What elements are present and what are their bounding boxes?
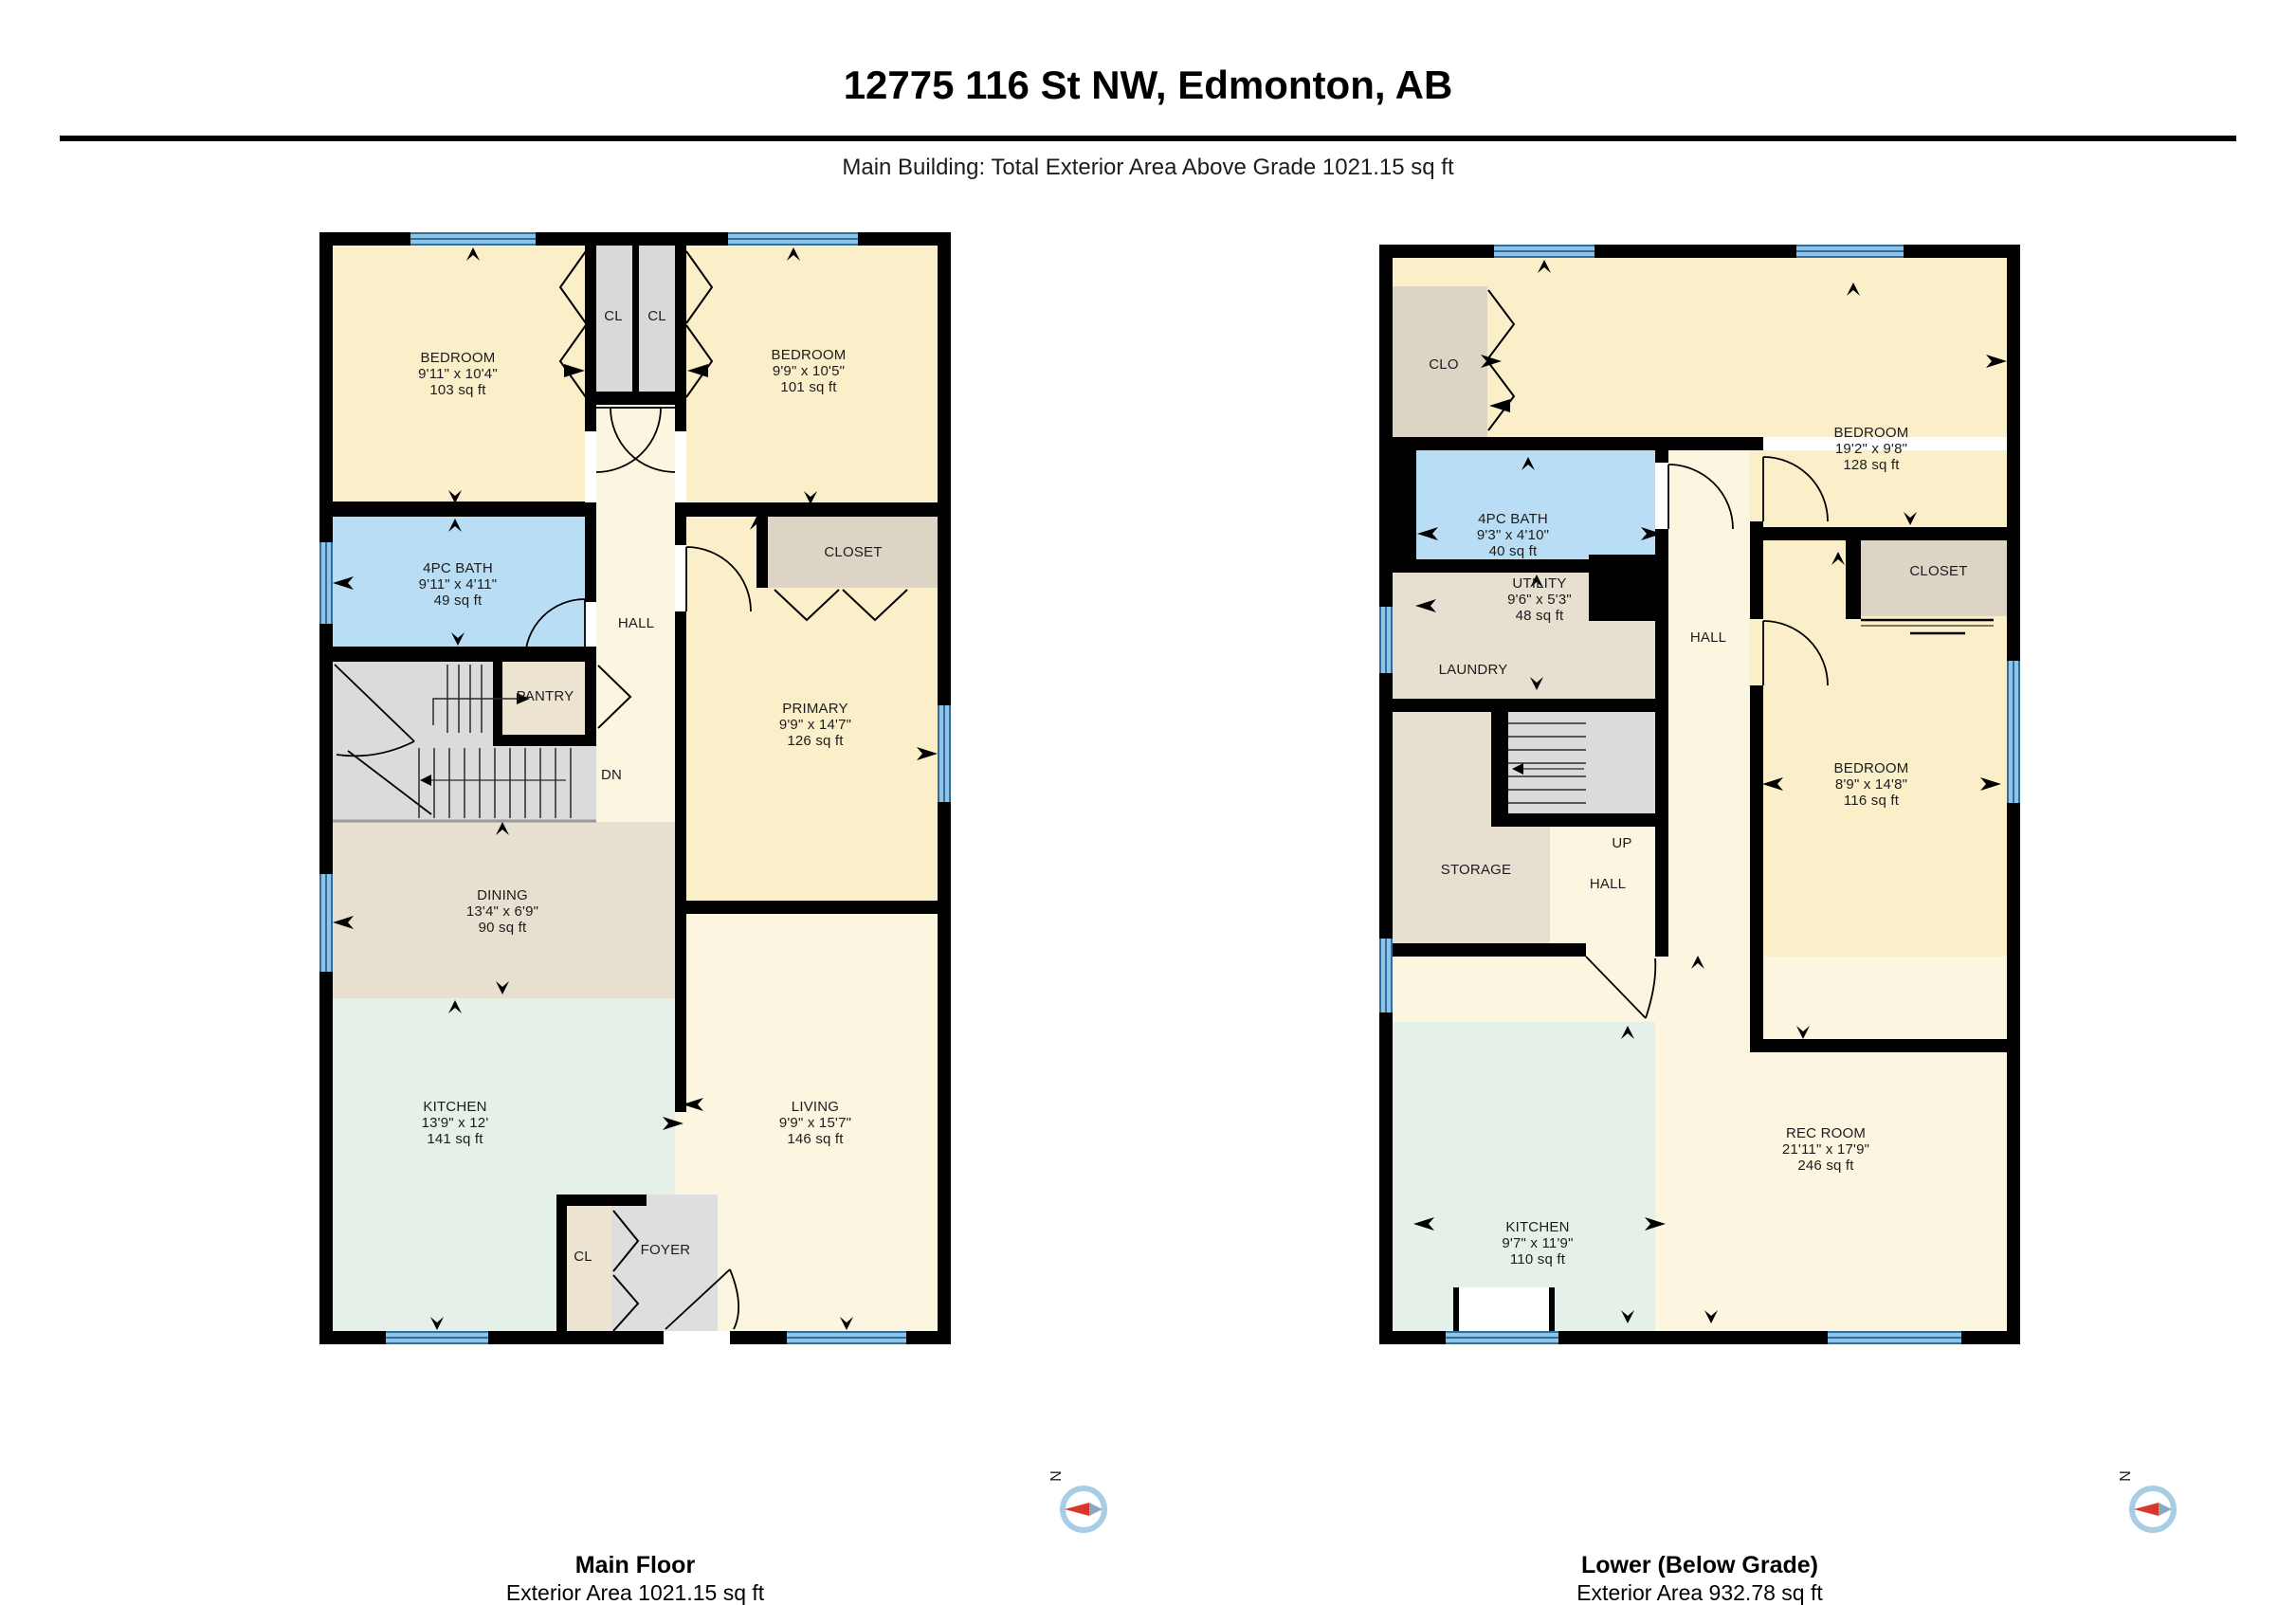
compass-north-label: N bbox=[2118, 1470, 2135, 1482]
direction-arrows bbox=[333, 247, 938, 1330]
main-floor-caption: Main Floor Exterior Area 1021.15 sq ft bbox=[446, 1551, 825, 1605]
closet-door-chevrons bbox=[560, 251, 907, 1331]
room-bedroom-left-label: BEDROOM 9'11" x 10'4" 103 sq ft bbox=[363, 350, 553, 398]
stairs-up-label: UP bbox=[1584, 835, 1660, 851]
lower-floor-plan: CLO BEDROOM 19'2" x 9'8" 128 sq ft 4PC B… bbox=[1379, 245, 2020, 1344]
room-bath-label: 4PC BATH 9'11" x 4'11" 49 sq ft bbox=[363, 560, 553, 609]
lower-floor-caption-title: Lower (Below Grade) bbox=[1510, 1551, 1889, 1579]
compass-icon bbox=[2124, 1479, 2181, 1536]
main-floor-caption-title: Main Floor bbox=[446, 1551, 825, 1579]
main-plan-symbols bbox=[319, 232, 951, 1344]
room-bedroom-right-label: BEDROOM 9'9" x 10'5" 101 sq ft bbox=[714, 347, 903, 395]
compass-lower: N bbox=[2124, 1479, 2181, 1536]
room-rec-label: REC ROOM 21'11" x 17'9" 246 sq ft bbox=[1731, 1125, 1921, 1174]
room-bedroom1-label: BEDROOM 19'2" x 9'8" 128 sq ft bbox=[1777, 425, 1966, 473]
room-primary-label: PRIMARY 9'9" x 14'7" 126 sq ft bbox=[720, 701, 910, 749]
room-storage-label: STORAGE bbox=[1410, 862, 1542, 878]
room-laundry-label: LAUNDRY bbox=[1407, 662, 1540, 678]
room-cl-right-label: CL bbox=[629, 308, 685, 324]
door-arcs bbox=[335, 408, 751, 1329]
room-kitchen-label: KITCHEN 13'9" x 12' 141 sq ft bbox=[360, 1099, 550, 1147]
title-divider bbox=[60, 136, 2236, 141]
room-living-label: LIVING 9'9" x 15'7" 146 sq ft bbox=[720, 1099, 910, 1147]
room-hall-label: HALL bbox=[589, 615, 683, 631]
room-closet-primary-label: CLOSET bbox=[787, 544, 920, 560]
compass-north-label: N bbox=[1048, 1470, 1066, 1482]
main-floor-plan: BEDROOM 9'11" x 10'4" 103 sq ft BEDROOM … bbox=[319, 232, 951, 1344]
stairs-dn-label: DN bbox=[583, 767, 640, 783]
room-hall-lower-label: HALL bbox=[1551, 876, 1665, 892]
compass-main: N bbox=[1055, 1479, 1112, 1536]
floorplan-page: 12775 116 St NW, Edmonton, AB Main Build… bbox=[0, 0, 2296, 1605]
door-arcs bbox=[1586, 457, 1828, 1018]
room-cl-foyer-label: CL bbox=[555, 1249, 611, 1265]
lower-floor-caption: Lower (Below Grade) Exterior Area 932.78… bbox=[1510, 1551, 1889, 1605]
stair-treads bbox=[1508, 723, 1586, 803]
room-bath-label: 4PC BATH 9'3" x 4'10" 40 sq ft bbox=[1418, 511, 1608, 559]
page-subtitle: Main Building: Total Exterior Area Above… bbox=[0, 155, 2296, 181]
room-hall-label: HALL bbox=[1661, 629, 1756, 646]
page-title: 12775 116 St NW, Edmonton, AB bbox=[0, 63, 2296, 108]
room-kitchen2-label: KITCHEN 9'7" x 11'9" 110 sq ft bbox=[1443, 1219, 1632, 1268]
main-floor-caption-sub: Exterior Area 1021.15 sq ft bbox=[446, 1579, 825, 1605]
room-bedroom2-label: BEDROOM 8'9" x 14'8" 116 sq ft bbox=[1777, 760, 1966, 809]
compass-icon bbox=[1055, 1479, 1112, 1536]
room-pantry-label: PANTRY bbox=[488, 688, 602, 704]
room-dining-label: DINING 13'4" x 6'9" 90 sq ft bbox=[408, 887, 597, 936]
lower-floor-caption-sub: Exterior Area 932.78 sq ft bbox=[1510, 1579, 1889, 1605]
room-foyer-label: FOYER bbox=[609, 1242, 722, 1258]
room-clo-label: CLO bbox=[1406, 356, 1482, 373]
room-closet2-label: CLOSET bbox=[1872, 563, 2005, 579]
room-utility-label: UTILITY 9'6" x 5'3" 48 sq ft bbox=[1445, 575, 1634, 624]
